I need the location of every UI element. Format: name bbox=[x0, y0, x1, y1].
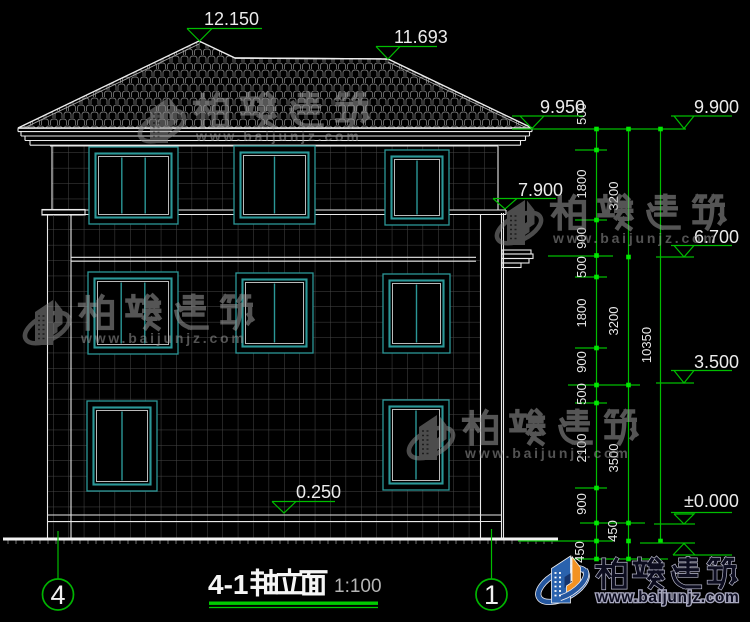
svg-text:3.500: 3.500 bbox=[694, 352, 739, 372]
svg-text:9.900: 9.900 bbox=[694, 97, 739, 117]
svg-text:1800: 1800 bbox=[574, 170, 589, 199]
svg-text:7.900: 7.900 bbox=[518, 180, 563, 200]
svg-text:900: 900 bbox=[574, 493, 589, 515]
svg-text:12.150: 12.150 bbox=[204, 9, 259, 29]
svg-text:450: 450 bbox=[605, 520, 620, 542]
svg-text:0.250: 0.250 bbox=[296, 482, 341, 502]
svg-text:1: 1 bbox=[484, 580, 499, 610]
svg-text:900: 900 bbox=[574, 351, 589, 373]
svg-text:1:100: 1:100 bbox=[334, 576, 382, 597]
svg-text:9.950: 9.950 bbox=[540, 97, 585, 117]
svg-text:500: 500 bbox=[574, 256, 589, 278]
svg-text:500: 500 bbox=[574, 383, 589, 405]
svg-text:1800: 1800 bbox=[574, 299, 589, 328]
svg-text:3200: 3200 bbox=[606, 307, 621, 336]
svg-text:10350: 10350 bbox=[639, 327, 654, 363]
svg-text:4-1: 4-1 bbox=[208, 569, 248, 600]
svg-text:11.693: 11.693 bbox=[394, 27, 448, 47]
svg-text:4: 4 bbox=[50, 580, 65, 610]
svg-text:www.baijunjz.com: www.baijunjz.com bbox=[595, 589, 739, 606]
svg-text:±0.000: ±0.000 bbox=[684, 491, 739, 511]
